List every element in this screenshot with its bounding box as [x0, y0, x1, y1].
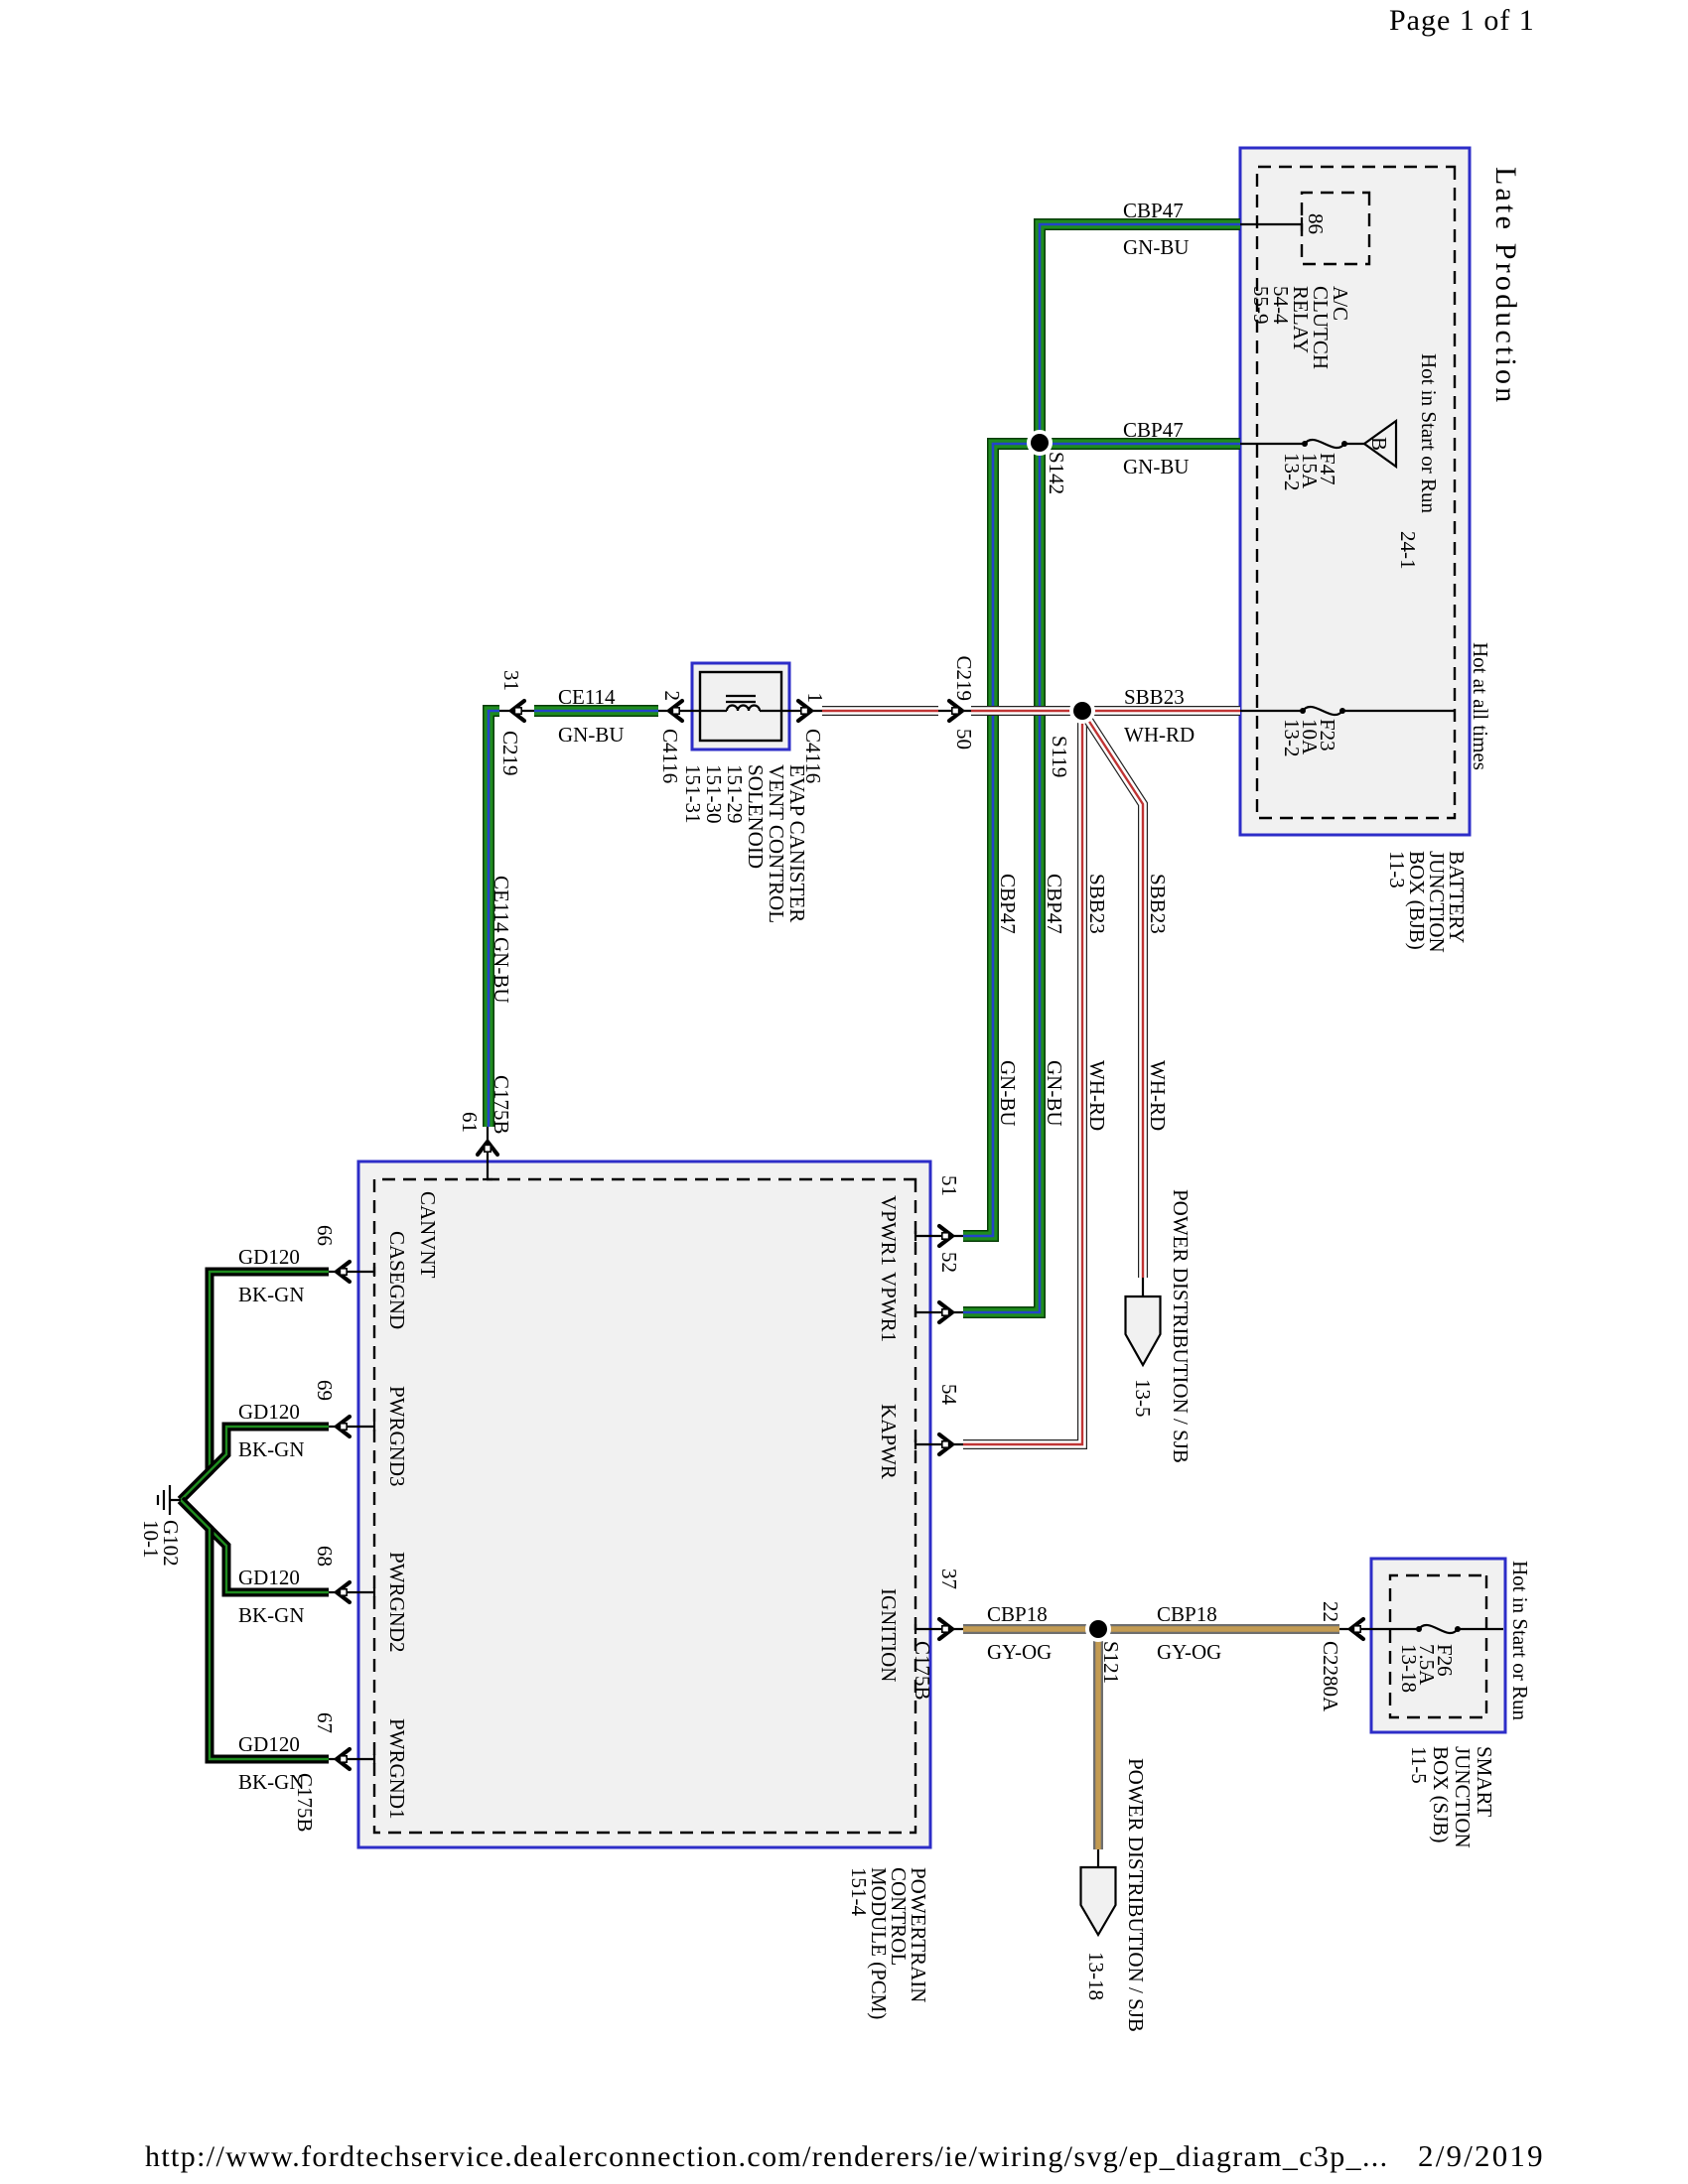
svg-text:54: 54	[937, 1384, 961, 1406]
svg-text:JUNCTION: JUNCTION	[1451, 1746, 1475, 1848]
svg-text:CANVNT: CANVNT	[416, 1191, 440, 1279]
svg-text:13-5: 13-5	[1131, 1379, 1155, 1418]
svg-text:S119: S119	[1048, 736, 1071, 777]
svg-text:55-9: 55-9	[1249, 286, 1273, 325]
svg-text:SMART: SMART	[1473, 1746, 1496, 1817]
svg-text:C175B: C175B	[490, 1075, 513, 1135]
svg-text:GD120: GD120	[238, 1245, 300, 1269]
svg-text:S121: S121	[1099, 1641, 1123, 1684]
svg-text:VPWR1: VPWR1	[877, 1272, 901, 1342]
svg-text:C175B: C175B	[293, 1773, 317, 1833]
svg-text:51: 51	[937, 1175, 961, 1196]
svg-text:13-18: 13-18	[1084, 1952, 1108, 2000]
svg-text:CBP47: CBP47	[1123, 418, 1184, 442]
svg-text:Page 1 of 1: Page 1 of 1	[1389, 4, 1535, 37]
svg-text:67: 67	[313, 1712, 337, 1733]
svg-text:52: 52	[937, 1252, 961, 1273]
svg-text:CBP18: CBP18	[1157, 1602, 1217, 1626]
svg-text:37: 37	[937, 1569, 961, 1589]
svg-text:Hot in Start or Run: Hot in Start or Run	[1417, 353, 1441, 513]
svg-text:BK-GN: BK-GN	[238, 1603, 305, 1627]
svg-text:IGNITION: IGNITION	[877, 1588, 901, 1682]
svg-text:10-1: 10-1	[139, 1520, 163, 1559]
svg-text:11-3: 11-3	[1385, 851, 1409, 888]
svg-text:S142: S142	[1045, 452, 1068, 494]
svg-text:CE114: CE114	[490, 876, 513, 933]
svg-text:CE114: CE114	[558, 685, 616, 709]
svg-text:BK-GN: BK-GN	[238, 1437, 305, 1461]
svg-text:86: 86	[1304, 213, 1328, 234]
svg-text:68: 68	[313, 1546, 337, 1567]
svg-text:CBP47: CBP47	[1043, 874, 1066, 934]
svg-text:13-2: 13-2	[1280, 453, 1304, 491]
svg-text:22: 22	[1319, 1601, 1342, 1622]
svg-text:C175B: C175B	[911, 1641, 934, 1701]
svg-text:2/9/2019: 2/9/2019	[1418, 2138, 1545, 2173]
svg-text:POWER DISTRIBUTION / SJB: POWER DISTRIBUTION / SJB	[1124, 1758, 1148, 2032]
svg-text:BK-GN: BK-GN	[238, 1283, 305, 1306]
svg-text:CASEGND: CASEGND	[385, 1231, 409, 1329]
svg-text:13-18: 13-18	[1397, 1644, 1421, 1693]
svg-text:C4116: C4116	[658, 729, 682, 783]
svg-text:CBP18: CBP18	[987, 1602, 1048, 1626]
svg-text:GY-OG: GY-OG	[1157, 1640, 1221, 1664]
svg-text:PWRGND1: PWRGND1	[385, 1718, 409, 1820]
svg-text:B: B	[1367, 437, 1391, 451]
svg-text:GD120: GD120	[238, 1400, 300, 1424]
svg-text:GD120: GD120	[238, 1732, 300, 1756]
svg-text:GY-OG: GY-OG	[987, 1640, 1052, 1664]
svg-text:GN-BU: GN-BU	[558, 723, 625, 747]
svg-text:2: 2	[660, 691, 684, 702]
svg-text:Hot in Start or Run: Hot in Start or Run	[1508, 1561, 1532, 1720]
svg-text:POWER DISTRIBUTION / SJB: POWER DISTRIBUTION / SJB	[1169, 1189, 1193, 1463]
svg-text:GN-BU: GN-BU	[490, 937, 513, 1004]
svg-text:CBP47: CBP47	[996, 874, 1020, 934]
svg-text:WH-RD: WH-RD	[1124, 723, 1195, 747]
svg-text:GN-BU: GN-BU	[1043, 1060, 1066, 1127]
svg-text:66: 66	[313, 1225, 337, 1246]
svg-text:WH-RD: WH-RD	[1146, 1060, 1170, 1131]
svg-text:50: 50	[952, 729, 976, 750]
svg-text:151-4: 151-4	[847, 1867, 871, 1916]
svg-text:PWRGND2: PWRGND2	[385, 1552, 409, 1653]
svg-text:SBB23: SBB23	[1124, 685, 1185, 709]
svg-text:BOX (SJB): BOX (SJB)	[1429, 1746, 1453, 1843]
svg-text:11-5: 11-5	[1407, 1746, 1431, 1784]
svg-text:C219: C219	[952, 655, 976, 701]
svg-text:GN-BU: GN-BU	[996, 1060, 1020, 1127]
svg-text:1: 1	[803, 693, 827, 704]
svg-text:GN-BU: GN-BU	[1123, 235, 1190, 259]
svg-text:SBB23: SBB23	[1085, 874, 1109, 934]
svg-text:CBP47: CBP47	[1123, 199, 1184, 222]
svg-text:C2280A: C2280A	[1319, 1641, 1342, 1712]
svg-text:C219: C219	[498, 731, 522, 776]
svg-text:http://www.fordtechservice.dea: http://www.fordtechservice.dealerconnect…	[145, 2140, 1389, 2173]
svg-text:VPWR1: VPWR1	[877, 1195, 901, 1266]
svg-text:69: 69	[313, 1380, 337, 1401]
svg-text:WH-RD: WH-RD	[1085, 1060, 1109, 1131]
svg-text:13-2: 13-2	[1280, 719, 1304, 757]
svg-text:PWRGND3: PWRGND3	[385, 1386, 409, 1487]
svg-text:31: 31	[499, 670, 523, 691]
svg-text:151-31: 151-31	[681, 764, 705, 824]
svg-text:61: 61	[458, 1112, 482, 1133]
svg-text:GD120: GD120	[238, 1566, 300, 1589]
svg-text:SBB23: SBB23	[1146, 874, 1170, 934]
svg-text:24-1: 24-1	[1396, 531, 1420, 570]
svg-text:KAPWR: KAPWR	[877, 1404, 901, 1479]
svg-text:GN-BU: GN-BU	[1123, 455, 1190, 478]
svg-text:Late Production: Late Production	[1489, 167, 1522, 405]
svg-text:Hot at all times: Hot at all times	[1469, 642, 1492, 770]
